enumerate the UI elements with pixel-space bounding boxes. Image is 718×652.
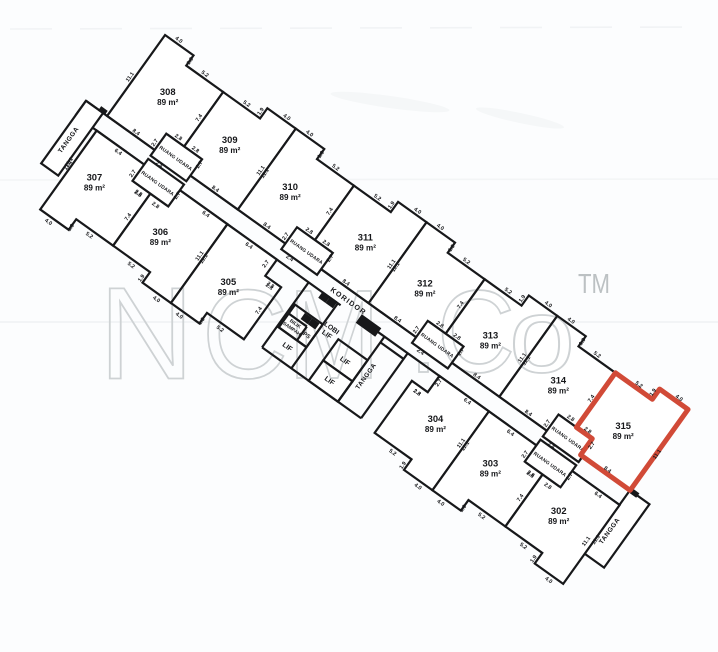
svg-text:89 m²: 89 m² [157,98,178,107]
svg-text:310: 310 [282,181,298,192]
svg-text:315: 315 [615,420,631,431]
svg-text:309: 309 [222,134,238,145]
svg-text:TM: TM [578,268,610,299]
svg-text:307: 307 [87,171,103,182]
svg-text:89 m²: 89 m² [414,290,435,299]
svg-text:89 m²: 89 m² [425,425,446,434]
svg-text:89 m²: 89 m² [84,183,105,192]
svg-text:89 m²: 89 m² [548,517,569,526]
svg-text:M: M [288,264,380,405]
svg-text:C: C [437,266,515,397]
svg-text:89 m²: 89 m² [355,243,376,252]
svg-text:302: 302 [551,505,567,516]
svg-text:89 m²: 89 m² [613,432,634,441]
svg-text:89 m²: 89 m² [480,469,501,478]
svg-text:N: N [99,260,194,407]
svg-text:306: 306 [153,226,169,237]
svg-text:311: 311 [358,231,373,242]
svg-text:89 m²: 89 m² [150,238,171,247]
svg-text:312: 312 [417,278,433,289]
svg-text:308: 308 [160,86,176,97]
svg-text:89 m²: 89 m² [280,193,301,202]
svg-text:o: o [509,277,575,395]
svg-text:89 m²: 89 m² [219,146,240,155]
svg-text:303: 303 [483,457,499,468]
svg-text:C: C [202,264,288,405]
svg-text:304: 304 [428,413,444,424]
